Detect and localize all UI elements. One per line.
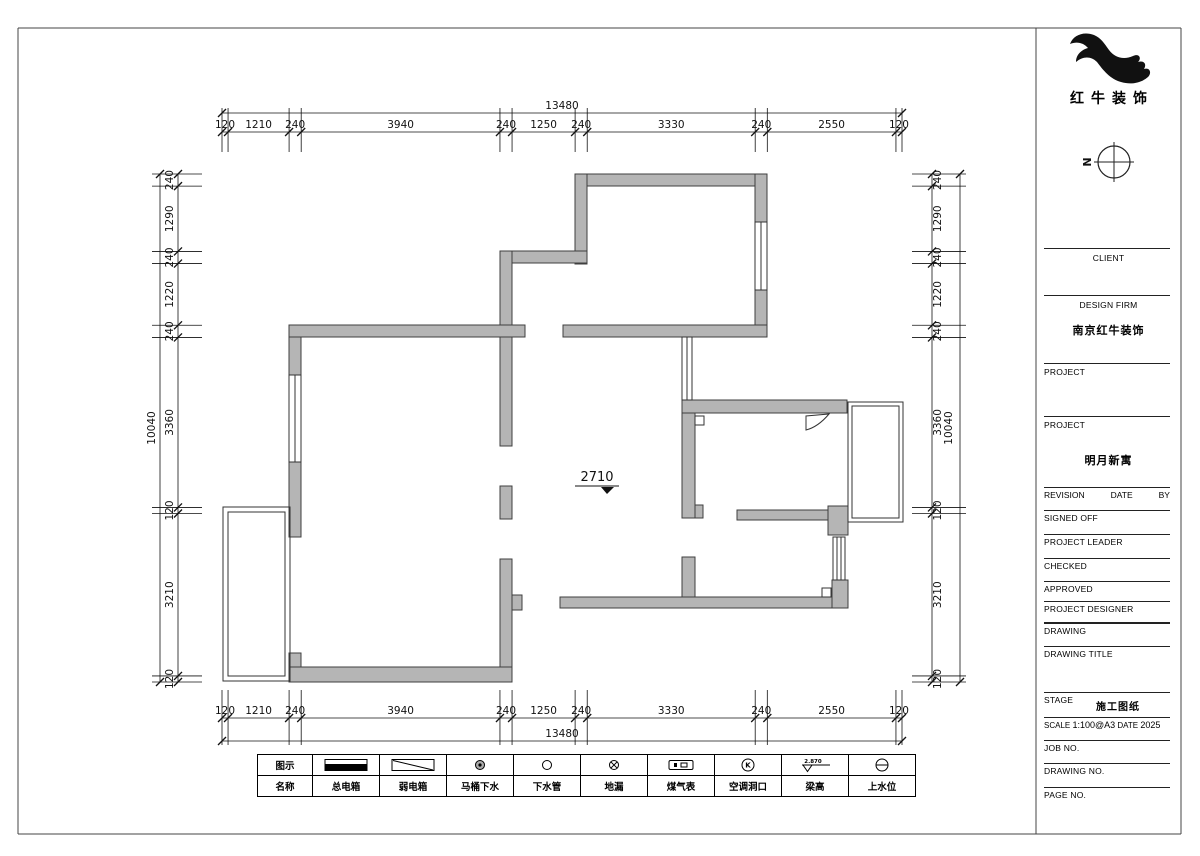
svg-text:120: 120 <box>164 669 176 689</box>
design-firm-label: DESIGN FIRM <box>1036 300 1181 310</box>
svg-text:3330: 3330 <box>658 119 685 131</box>
legend-name-drain-pipe: 下水管 <box>514 776 581 797</box>
title-block: 红牛装饰 N CLIENT DESIGN FIRM 南京红牛装饰 PROJECT… <box>1036 0 1181 856</box>
svg-text:240: 240 <box>932 321 944 341</box>
scale-row: SCALE 1:100@A3 DATE 2025 <box>1044 720 1174 730</box>
beam-height-symbol: 2.870 <box>782 755 849 776</box>
drain-pipe-symbol <box>514 755 581 776</box>
legend-name-ac-hole: 空调洞口 <box>715 776 782 797</box>
ac-hole-symbol: K <box>715 755 782 776</box>
brand-logo-icon <box>1064 32 1160 94</box>
svg-text:240: 240 <box>496 119 516 131</box>
floor-plan-drawing: 2710 13480120121024039402401250240333024… <box>0 0 1200 856</box>
north-compass-icon: N <box>1074 138 1144 186</box>
main-electric-box-symbol <box>313 755 380 776</box>
date-label: DATE <box>1111 490 1133 500</box>
svg-text:2550: 2550 <box>818 119 845 131</box>
svg-text:3210: 3210 <box>164 581 176 608</box>
svg-text:240: 240 <box>932 247 944 267</box>
svg-text:10040: 10040 <box>146 411 158 444</box>
svg-text:120: 120 <box>889 119 909 131</box>
project-designer-label: PROJECT DESIGNER <box>1044 604 1133 614</box>
svg-text:240: 240 <box>571 705 591 717</box>
revision-row: REVISION DATE BY <box>1044 490 1170 500</box>
svg-text:3940: 3940 <box>387 705 414 717</box>
svg-text:240: 240 <box>164 247 176 267</box>
signed-off-label: SIGNED OFF <box>1044 513 1098 523</box>
svg-text:10040: 10040 <box>943 411 955 444</box>
svg-text:240: 240 <box>496 705 516 717</box>
svg-text:240: 240 <box>285 705 305 717</box>
floor-elevation-value: 2710 <box>580 470 613 485</box>
stage-value: 施工图纸 <box>1096 698 1140 713</box>
svg-text:2550: 2550 <box>818 705 845 717</box>
brand-logo-text: 红牛装饰 <box>1036 88 1181 108</box>
svg-text:240: 240 <box>571 119 591 131</box>
job-no-label: JOB NO. <box>1044 743 1079 753</box>
legend-name-beam-height: 梁高 <box>782 776 849 797</box>
drawing-no-label: DRAWING NO. <box>1044 766 1104 776</box>
date2-label: DATE <box>1117 721 1138 730</box>
dimension-chain-right: 100402401290240122024033601203210120 <box>912 170 966 689</box>
project-value: 明月新寓 <box>1036 452 1181 468</box>
svg-text:240: 240 <box>751 705 771 717</box>
gas-meter-symbol <box>648 755 715 776</box>
svg-text:3940: 3940 <box>387 119 414 131</box>
dimension-chain-top: 1348012012102403940240125024033302402550… <box>215 100 909 152</box>
floor-plan-sheet: { "branding": { "logo_text": "红牛装饰", "no… <box>0 0 1200 856</box>
by-label: BY <box>1159 490 1170 500</box>
svg-text:120: 120 <box>932 669 944 689</box>
svg-text:13480: 13480 <box>545 728 578 740</box>
water-supply-symbol <box>849 755 916 776</box>
svg-text:120: 120 <box>215 705 235 717</box>
legend-table: 图示 K 2.870 <box>257 754 916 797</box>
dimension-chain-bottom: 1348012012102403940240125024033302402550… <box>215 690 909 745</box>
svg-text:1210: 1210 <box>245 119 272 131</box>
svg-text:3360: 3360 <box>932 409 944 436</box>
weak-electric-box-symbol <box>380 755 447 776</box>
svg-text:240: 240 <box>932 170 944 190</box>
svg-text:K: K <box>745 762 751 770</box>
legend-name-main-electric-box: 总电箱 <box>313 776 380 797</box>
approved-label: APPROVED <box>1044 584 1093 594</box>
stage-label: STAGE <box>1044 695 1073 705</box>
svg-text:3210: 3210 <box>932 581 944 608</box>
client-label: CLIENT <box>1036 253 1181 263</box>
svg-text:120: 120 <box>932 500 944 520</box>
svg-text:1220: 1220 <box>932 281 944 308</box>
legend-name-floor-drain: 地漏 <box>581 776 648 797</box>
project-leader-label: PROJECT LEADER <box>1044 537 1123 547</box>
project-label-2: PROJECT <box>1044 420 1085 430</box>
svg-text:3330: 3330 <box>658 705 685 717</box>
svg-text:1290: 1290 <box>932 205 944 232</box>
floor-elevation-marker: 2710 <box>575 470 619 494</box>
svg-text:1250: 1250 <box>530 705 557 717</box>
balcony-railings <box>223 402 903 681</box>
legend-name-row: 名称 总电箱 弱电箱 马桶下水 下水管 地漏 煤气表 空调洞口 梁高 上水位 <box>258 776 916 797</box>
svg-text:2.870: 2.870 <box>804 759 822 765</box>
legend-name-toilet-drain: 马桶下水 <box>447 776 514 797</box>
page-no-label: PAGE NO. <box>1044 790 1086 800</box>
svg-text:120: 120 <box>889 705 909 717</box>
door-leaves <box>695 414 831 597</box>
svg-text:1210: 1210 <box>245 705 272 717</box>
dimension-chain-left: 100402401290240122024033601203210120 <box>146 170 202 689</box>
floor-drain-symbol <box>581 755 648 776</box>
svg-text:3360: 3360 <box>164 409 176 436</box>
project-label-1: PROJECT <box>1044 367 1085 377</box>
svg-text:1220: 1220 <box>164 281 176 308</box>
revision-label: REVISION <box>1044 490 1085 500</box>
date-value: 2025 <box>1140 720 1160 730</box>
legend-name-water-supply: 上水位 <box>849 776 916 797</box>
legend-row2-header: 名称 <box>258 776 313 797</box>
toilet-drain-symbol <box>447 755 514 776</box>
north-label: N <box>1080 157 1093 166</box>
checked-label: CHECKED <box>1044 561 1087 571</box>
svg-text:13480: 13480 <box>545 100 578 112</box>
svg-text:120: 120 <box>215 119 235 131</box>
legend-name-gas-meter: 煤气表 <box>648 776 715 797</box>
svg-text:240: 240 <box>164 170 176 190</box>
svg-text:240: 240 <box>164 321 176 341</box>
drawing-title-label: DRAWING TITLE <box>1044 649 1113 659</box>
legend-row1-header: 图示 <box>258 755 313 776</box>
design-firm-value: 南京红牛装饰 <box>1036 322 1181 338</box>
legend-symbol-row: 图示 K 2.870 <box>258 755 916 776</box>
svg-text:240: 240 <box>751 119 771 131</box>
drawing-label: DRAWING <box>1044 626 1086 636</box>
scale-label: SCALE <box>1044 721 1070 730</box>
svg-text:1250: 1250 <box>530 119 557 131</box>
legend-name-weak-electric-box: 弱电箱 <box>380 776 447 797</box>
sheet-frame <box>18 28 1181 834</box>
svg-text:120: 120 <box>164 500 176 520</box>
svg-text:240: 240 <box>285 119 305 131</box>
svg-text:1290: 1290 <box>164 205 176 232</box>
scale-value: 1:100@A3 <box>1072 720 1115 730</box>
